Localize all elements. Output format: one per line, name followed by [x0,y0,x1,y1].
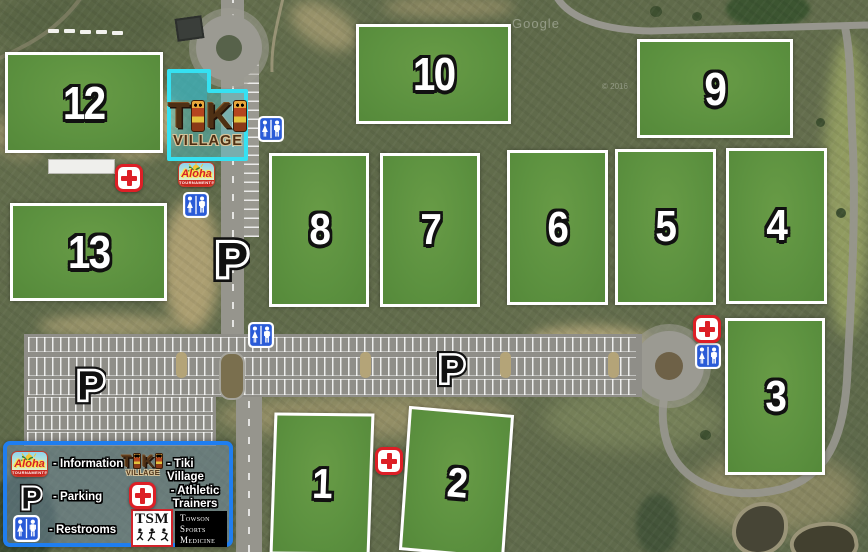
grass-light [824,38,868,338]
storage-building [48,159,115,174]
athletic-trainer-icon [693,315,721,343]
north-roundabout [196,15,262,81]
field-3: 3 [725,318,825,475]
east-roundabout [634,331,704,401]
tree [836,208,846,218]
towson-line1: Towson [180,513,227,523]
parking-icon: P P [212,231,250,285]
tree [692,12,702,21]
parking-icon: P P [19,481,43,514]
restroom-icon [183,192,209,218]
legend-athletic-label: - Athletic Trainers [159,485,231,511]
google-watermark: Google [512,16,560,31]
svg-text:P: P [439,348,465,389]
tree-cluster [726,0,810,28]
field-number: 1 [312,463,332,505]
tiki-village-word: VILLAGE [126,470,160,477]
athletic-line1: - Athletic [159,485,231,498]
field-2: 2 [399,406,514,552]
field-number: 6 [548,206,568,250]
tiki-mask-icon [133,453,141,469]
parking-icon: P P [435,347,467,389]
legend-medical-icon [129,482,156,509]
bleacher-mark [96,30,107,34]
field-number: 5 [656,205,676,249]
tree [700,430,711,440]
field-8: 8 [269,153,369,307]
bleacher-mark [48,29,59,33]
field-10: 10 [356,24,511,124]
bleacher-mark [64,29,75,33]
sports-complex-map: Google © 2016 121310987654312 T [0,0,868,552]
field-number: 4 [767,204,787,248]
svg-text:P: P [77,363,104,407]
aloha-logo: Aloha TOURNAMENTS [178,162,215,187]
aloha-name: Aloha [181,169,212,180]
tree [816,118,825,127]
restroom-icon [258,116,284,147]
grass-shade [0,0,180,56]
grass-shade [543,388,725,450]
field-number: 13 [68,229,110,275]
aloha-banner: TOURNAMENTS [12,470,47,476]
red-cross-icon [135,488,151,504]
restroom-icon [695,343,721,374]
legend-tiki-logo: T K VILLAGE [123,453,163,477]
parking-stalls [28,379,636,395]
bleacher-mark [80,30,91,34]
tsm-abbr: TSM [135,512,169,527]
towson-line3: Medicine [180,535,227,545]
athletic-trainer-icon [375,447,403,475]
median-island [219,352,245,400]
restroom-icon [248,322,274,348]
legend-restroom-icon [13,515,40,547]
parking-island [608,352,619,378]
field-5: 5 [615,149,716,305]
bleacher-mark [112,31,123,35]
tiki-word: T K [122,453,165,469]
parking-stalls [28,357,636,376]
dirt-patch [283,0,365,61]
tiki-letter-k: K [142,455,154,469]
legend-parking-label: - Parking [53,491,102,504]
field-number: 8 [309,208,329,252]
field-1: 1 [270,413,375,552]
parking-icon: P P [74,362,106,407]
towson-sports-medicine-logo: Towson Sports Medicine [175,511,227,547]
field-number: 12 [63,80,105,126]
aloha-banner: TOURNAMENTS [179,180,214,186]
towson-line2: Sports [180,524,227,534]
red-cross-icon [699,321,715,337]
legend-tiki-label: - Tiki Village [167,458,229,484]
parking-stalls [27,415,213,430]
legend-restrooms-label: - Restrooms [49,524,116,537]
restroom-icon [13,515,40,542]
tree-cluster [636,494,678,552]
parking-island [500,352,511,378]
field-6: 6 [507,150,608,305]
pavilion-building [175,15,205,42]
restroom-icon [695,343,721,369]
tiki-mask-icon [191,100,205,132]
tsm-logo: TSM [131,509,173,547]
roadside-parking [244,55,259,237]
field-number: 7 [420,208,440,252]
tiki-letter-t: T [168,101,190,132]
aloha-name: Aloha [14,459,45,470]
svg-text:P: P [22,483,42,514]
red-cross-icon [381,453,397,469]
restroom-icon [183,192,209,223]
dirt-patch [383,0,515,18]
field-number: 2 [446,461,468,504]
tiki-mask-icon [155,453,163,469]
parking-stalls [28,337,636,352]
legend-panel: Aloha TOURNAMENTS - Information T K VILL… [3,441,233,547]
field-number: 9 [705,66,726,112]
restroom-icon [258,116,284,142]
parking-icon: P P [212,231,250,290]
pond [732,502,788,552]
parking-island [176,352,187,378]
south-road [236,392,262,552]
field-9: 9 [637,39,793,138]
tsm-athletes-icon [134,527,170,543]
legend-aloha-logo: Aloha TOURNAMENTS [11,451,48,477]
legend-information-label: - Information [53,458,123,471]
parking-icon: P P [435,347,467,394]
legend-parking-icon: P P [19,481,43,519]
red-cross-icon [121,170,137,186]
field-4: 4 [726,148,827,304]
field-number: 3 [765,375,785,419]
pond [787,516,862,552]
svg-text:P: P [216,233,248,285]
athletic-trainer-icon [115,164,143,192]
field-7: 7 [380,153,480,307]
restroom-icon [248,322,274,353]
field-12: 12 [5,52,163,153]
parking-stalls [27,397,213,412]
tree [650,6,662,17]
parking-island [360,352,371,378]
field-13: 13 [10,203,167,301]
parking-icon: P P [74,362,106,412]
field-number: 10 [413,51,455,97]
copyright-watermark: © 2016 [602,82,628,91]
